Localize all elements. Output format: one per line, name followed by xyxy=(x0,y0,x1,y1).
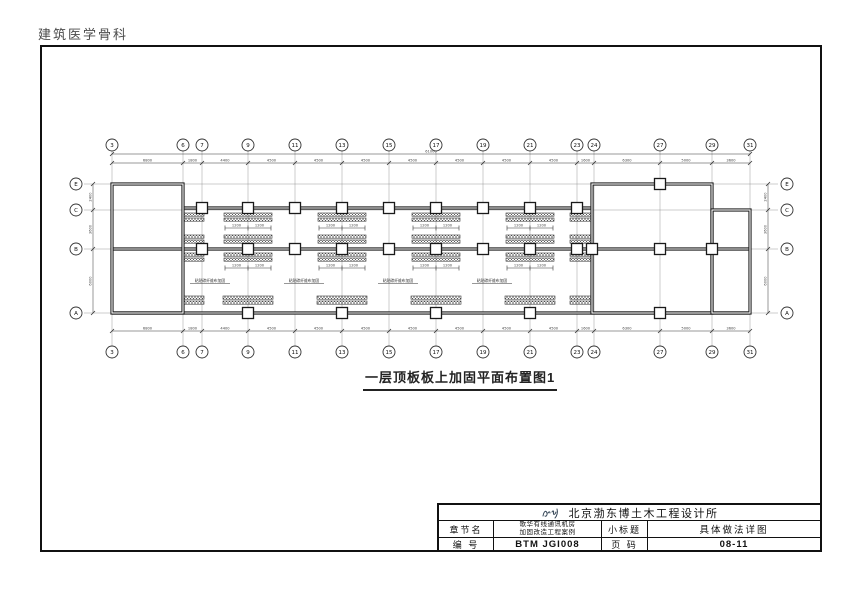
svg-text:2400: 2400 xyxy=(764,192,768,202)
svg-text:1200: 1200 xyxy=(349,224,359,228)
svg-text:1800: 1800 xyxy=(188,327,198,331)
svg-text:29: 29 xyxy=(709,143,716,149)
svg-text:21: 21 xyxy=(527,350,534,356)
plan-title: 一层顶板板上加固平面布置图1 xyxy=(363,367,557,391)
svg-text:1200: 1200 xyxy=(349,264,359,268)
svg-text:1800: 1800 xyxy=(188,159,198,163)
company-name: 北京渤东博土木工程设计所 xyxy=(569,505,719,521)
svg-text:19: 19 xyxy=(480,143,487,149)
svg-text:6: 6 xyxy=(181,143,185,149)
svg-text:C: C xyxy=(74,208,78,214)
svg-text:1200: 1200 xyxy=(514,224,524,228)
svg-text:4500: 4500 xyxy=(408,159,418,163)
svg-text:17: 17 xyxy=(433,143,440,149)
svg-text:4500: 4500 xyxy=(455,159,465,163)
svg-text:4500: 4500 xyxy=(408,327,418,331)
svg-text:B: B xyxy=(74,247,78,253)
svg-text:3600: 3600 xyxy=(89,224,93,234)
svg-text:4500: 4500 xyxy=(267,159,277,163)
svg-text:2400: 2400 xyxy=(89,192,93,202)
svg-text:1200: 1200 xyxy=(326,264,336,268)
svg-text:3600: 3600 xyxy=(726,159,736,163)
svg-text:13: 13 xyxy=(339,143,346,149)
svg-text:1200: 1200 xyxy=(420,264,430,268)
svg-text:1200: 1200 xyxy=(514,264,524,268)
svg-text:15: 15 xyxy=(386,350,393,356)
svg-text:粘贴碳纤维布加固: 粘贴碳纤维布加固 xyxy=(195,278,226,283)
svg-text:B: B xyxy=(785,247,789,253)
svg-text:1200: 1200 xyxy=(232,264,242,268)
svg-text:4500: 4500 xyxy=(314,327,324,331)
svg-text:7: 7 xyxy=(200,143,204,149)
svg-text:27: 27 xyxy=(657,350,664,356)
svg-text:27: 27 xyxy=(657,143,664,149)
svg-text:4500: 4500 xyxy=(502,327,512,331)
svg-text:3: 3 xyxy=(110,350,114,356)
svg-text:1600: 1600 xyxy=(581,159,591,163)
svg-text:5000: 5000 xyxy=(681,159,691,163)
svg-text:粘贴碳纤维布加固: 粘贴碳纤维布加固 xyxy=(383,278,414,283)
number-value: BTM JGI008 xyxy=(494,538,602,550)
svg-text:E: E xyxy=(74,182,78,188)
svg-text:6800: 6800 xyxy=(143,327,153,331)
svg-text:1200: 1200 xyxy=(443,264,453,268)
svg-text:1200: 1200 xyxy=(232,224,242,228)
svg-text:A: A xyxy=(785,311,789,317)
svg-text:4500: 4500 xyxy=(455,327,465,331)
svg-text:4500: 4500 xyxy=(361,159,371,163)
svg-text:13: 13 xyxy=(339,350,346,356)
svg-text:1200: 1200 xyxy=(255,264,265,268)
svg-text:A: A xyxy=(74,311,78,317)
svg-text:4400: 4400 xyxy=(220,327,230,331)
svg-text:1200: 1200 xyxy=(420,224,430,228)
reinforcement-strips: 1200120012001200粘贴碳纤维布加固1200120012001200… xyxy=(182,213,592,304)
svg-text:23: 23 xyxy=(574,350,581,356)
svg-text:1200: 1200 xyxy=(255,224,265,228)
svg-text:24: 24 xyxy=(591,143,598,149)
page-value: 08-11 xyxy=(648,538,820,550)
svg-text:粘贴碳纤维布加固: 粘贴碳纤维布加固 xyxy=(289,278,320,283)
svg-text:17: 17 xyxy=(433,350,440,356)
svg-text:1200: 1200 xyxy=(443,224,453,228)
svg-text:6800: 6800 xyxy=(143,159,153,163)
svg-text:15: 15 xyxy=(386,143,393,149)
svg-text:31: 31 xyxy=(747,143,754,149)
svg-text:4500: 4500 xyxy=(549,159,559,163)
svg-text:6000: 6000 xyxy=(764,276,768,286)
svg-text:5000: 5000 xyxy=(681,327,691,331)
svg-text:3600: 3600 xyxy=(726,327,736,331)
svg-text:31: 31 xyxy=(747,350,754,356)
svg-text:3: 3 xyxy=(110,143,114,149)
svg-text:6000: 6000 xyxy=(89,276,93,286)
svg-text:4500: 4500 xyxy=(549,327,559,331)
svg-text:9: 9 xyxy=(246,143,250,149)
svg-text:1200: 1200 xyxy=(326,224,336,228)
svg-text:11: 11 xyxy=(292,143,299,149)
company-row: 北京渤东博土木工程设计所 xyxy=(439,505,820,521)
project-name: 歌华有线通讯机房 加固改造工程案例 xyxy=(494,521,602,538)
svg-text:1200: 1200 xyxy=(537,224,547,228)
company-logo-icon xyxy=(541,507,563,519)
title-block: 北京渤东博土木工程设计所 章节名 歌华有线通讯机房 加固改造工程案例 小标题 具… xyxy=(437,503,822,552)
svg-text:6300: 6300 xyxy=(622,327,632,331)
svg-text:24: 24 xyxy=(591,350,598,356)
svg-text:21: 21 xyxy=(527,143,534,149)
svg-text:C: C xyxy=(785,208,789,214)
number-label: 编 号 xyxy=(439,538,494,550)
svg-text:3600: 3600 xyxy=(764,224,768,234)
subtitle-label: 小标题 xyxy=(602,521,648,538)
svg-text:9: 9 xyxy=(246,350,250,356)
svg-text:23: 23 xyxy=(574,143,581,149)
svg-text:29: 29 xyxy=(709,350,716,356)
subtitle-value: 具体做法详图 xyxy=(648,521,820,538)
svg-text:4500: 4500 xyxy=(361,327,371,331)
svg-text:4500: 4500 xyxy=(267,327,277,331)
chapter-label: 章节名 xyxy=(439,521,494,538)
svg-text:4500: 4500 xyxy=(502,159,512,163)
svg-text:11: 11 xyxy=(292,350,299,356)
svg-text:E: E xyxy=(785,182,789,188)
svg-text:4500: 4500 xyxy=(314,159,324,163)
svg-text:4400: 4400 xyxy=(220,159,230,163)
svg-text:7: 7 xyxy=(200,350,204,356)
svg-text:1200: 1200 xyxy=(537,264,547,268)
svg-text:19: 19 xyxy=(480,350,487,356)
svg-text:1600: 1600 xyxy=(581,327,591,331)
svg-text:6: 6 xyxy=(181,350,185,356)
svg-text:6300: 6300 xyxy=(622,159,632,163)
svg-text:粘贴碳纤维布加固: 粘贴碳纤维布加固 xyxy=(477,278,508,283)
page-label: 页 码 xyxy=(602,538,648,550)
drawing-sheet: 建筑医学骨科 680018004400450045004500450045004… xyxy=(0,0,863,603)
